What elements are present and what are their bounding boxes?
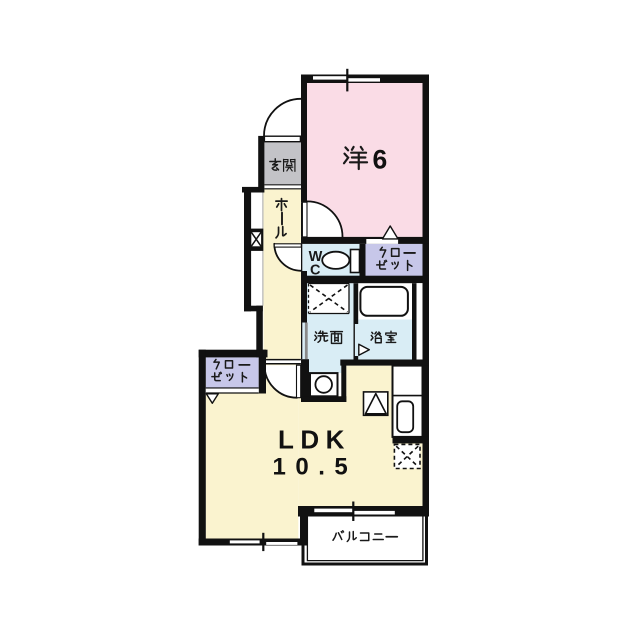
svg-text:6: 6 <box>373 145 388 175</box>
svg-text:10.5: 10.5 <box>273 454 358 481</box>
svg-text:LDK: LDK <box>278 425 351 455</box>
svg-text:C: C <box>310 263 321 279</box>
